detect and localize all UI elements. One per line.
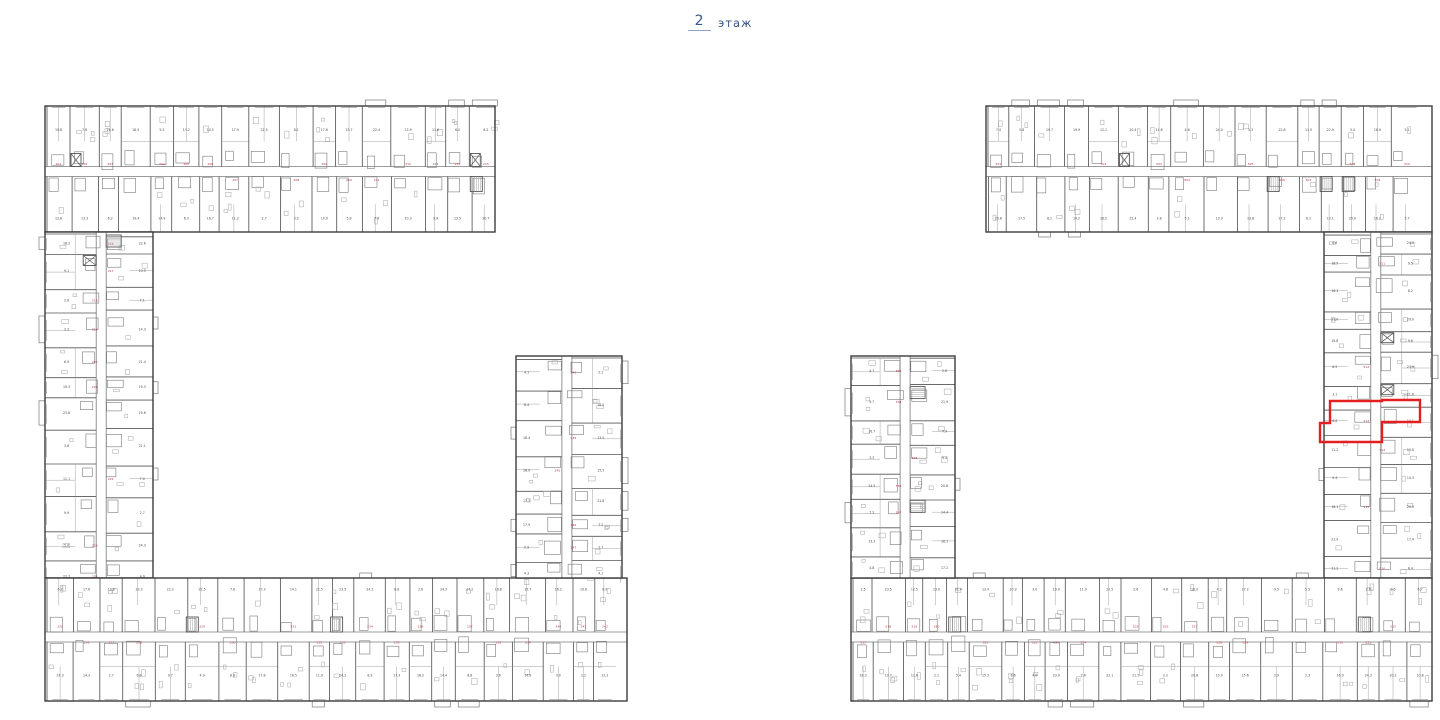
svg-text:229: 229 — [199, 625, 205, 629]
svg-text:17.2: 17.2 — [941, 566, 948, 570]
svg-text:7.8: 7.8 — [230, 587, 235, 591]
building-left: 19.812.82017.813.320216.66.220318.519.45… — [39, 100, 628, 707]
svg-text:18.0: 18.0 — [523, 469, 530, 473]
svg-text:201: 201 — [56, 162, 62, 166]
svg-text:13.3: 13.3 — [868, 539, 875, 543]
svg-text:231: 231 — [291, 625, 297, 629]
svg-text:216: 216 — [108, 241, 114, 245]
wing-left: 18.222.62169.110.52172.67.12183.314.3219… — [39, 232, 158, 590]
svg-text:22.6: 22.6 — [139, 241, 146, 245]
svg-text:20.2: 20.2 — [1389, 673, 1396, 677]
svg-text:21.4: 21.4 — [955, 587, 962, 591]
svg-text:211: 211 — [374, 178, 380, 182]
svg-text:4.9: 4.9 — [200, 673, 205, 677]
svg-text:9.9: 9.9 — [64, 511, 69, 515]
svg-text:13.8: 13.8 — [1247, 216, 1254, 220]
svg-text:523: 523 — [1053, 641, 1059, 645]
svg-text:7.0: 7.0 — [140, 477, 145, 481]
svg-text:207: 207 — [232, 178, 238, 182]
svg-text:24.2: 24.2 — [366, 587, 373, 591]
svg-text:2.6: 2.6 — [1081, 673, 1086, 677]
svg-text:8.9: 8.9 — [602, 587, 607, 591]
svg-text:16.2: 16.2 — [555, 587, 562, 591]
svg-text:3.0: 3.0 — [556, 673, 561, 677]
svg-text:9.6: 9.6 — [1338, 587, 1343, 591]
svg-text:225: 225 — [57, 625, 63, 629]
svg-text:19.4: 19.4 — [132, 216, 139, 220]
svg-text:9.5: 9.5 — [1274, 587, 1279, 591]
svg-text:14.4: 14.4 — [440, 673, 447, 677]
svg-text:17.9: 17.9 — [523, 523, 530, 527]
svg-text:11.6: 11.6 — [911, 673, 918, 677]
svg-text:217: 217 — [108, 269, 114, 273]
svg-text:17.5: 17.5 — [1018, 216, 1025, 220]
svg-text:241: 241 — [581, 625, 587, 629]
svg-text:22.5: 22.5 — [199, 587, 206, 591]
svg-text:19.8: 19.8 — [1331, 339, 1338, 343]
svg-text:530: 530 — [1337, 641, 1343, 645]
svg-text:17.6: 17.6 — [321, 128, 328, 132]
svg-text:23.9: 23.9 — [1053, 673, 1060, 677]
svg-text:23.7: 23.7 — [345, 128, 352, 132]
svg-text:12.8: 12.8 — [55, 216, 62, 220]
svg-text:10.5: 10.5 — [207, 128, 214, 132]
svg-text:518: 518 — [885, 625, 891, 629]
svg-text:203: 203 — [107, 162, 113, 166]
svg-text:4.6: 4.6 — [1185, 128, 1190, 132]
svg-text:15.3: 15.3 — [982, 673, 989, 677]
svg-text:519: 519 — [912, 625, 918, 629]
svg-text:13.2: 13.2 — [183, 128, 190, 132]
svg-text:14.2: 14.2 — [1073, 216, 1080, 220]
svg-text:17.3: 17.3 — [393, 673, 400, 677]
svg-text:5.8: 5.8 — [1019, 128, 1024, 132]
svg-text:21.1: 21.1 — [139, 444, 146, 448]
svg-text:20.8: 20.8 — [1191, 673, 1198, 677]
svg-text:13.1: 13.1 — [1327, 216, 1334, 220]
svg-text:11.1: 11.1 — [63, 477, 70, 481]
svg-text:3.2: 3.2 — [294, 216, 299, 220]
svg-text:10.9: 10.9 — [321, 216, 328, 220]
svg-text:236: 236 — [418, 625, 424, 629]
svg-text:8.8: 8.8 — [1332, 419, 1337, 423]
svg-text:18.9: 18.9 — [1374, 128, 1381, 132]
svg-text:7.1: 7.1 — [140, 298, 145, 302]
svg-text:17.6: 17.6 — [83, 587, 90, 591]
svg-text:17.2: 17.2 — [466, 587, 473, 591]
svg-text:6.7: 6.7 — [1418, 587, 1423, 591]
svg-text:3.0: 3.0 — [1032, 587, 1037, 591]
svg-text:22.5: 22.5 — [261, 128, 268, 132]
svg-text:8.8: 8.8 — [394, 587, 399, 591]
svg-text:534: 534 — [896, 400, 902, 404]
svg-text:210: 210 — [346, 178, 352, 182]
svg-text:240: 240 — [555, 625, 561, 629]
svg-text:23.3: 23.3 — [135, 587, 142, 591]
svg-text:521: 521 — [983, 641, 989, 645]
svg-text:9.9: 9.9 — [433, 216, 438, 220]
svg-text:8.6: 8.6 — [1011, 673, 1016, 677]
svg-text:15.6: 15.6 — [1242, 673, 1249, 677]
svg-text:19.3: 19.3 — [63, 385, 70, 389]
svg-text:12.1: 12.1 — [1100, 128, 1107, 132]
svg-text:8.8: 8.8 — [467, 673, 472, 677]
svg-text:226: 226 — [84, 641, 90, 645]
svg-text:7.2: 7.2 — [869, 511, 874, 515]
floor-plan-canvas: 19.812.82017.813.320216.66.220318.519.45… — [0, 0, 1440, 720]
svg-text:11.6: 11.6 — [432, 128, 439, 132]
svg-text:18.0: 18.0 — [597, 403, 604, 407]
svg-text:13.3: 13.3 — [81, 216, 88, 220]
svg-text:19.8: 19.8 — [55, 128, 62, 132]
svg-text:2.7: 2.7 — [109, 673, 114, 677]
svg-text:9.5: 9.5 — [1408, 262, 1413, 266]
svg-text:516: 516 — [1379, 567, 1385, 571]
svg-text:2.2: 2.2 — [581, 673, 586, 677]
svg-text:6.5: 6.5 — [1332, 365, 1337, 369]
svg-text:24.3: 24.3 — [1365, 673, 1372, 677]
svg-text:14.3: 14.3 — [139, 327, 146, 331]
svg-text:237: 237 — [467, 625, 473, 629]
svg-text:239: 239 — [525, 641, 531, 645]
svg-text:21.5: 21.5 — [316, 587, 323, 591]
svg-text:9.6: 9.6 — [1390, 587, 1395, 591]
svg-text:230: 230 — [230, 641, 236, 645]
svg-text:6.6: 6.6 — [1332, 241, 1337, 245]
svg-text:14.4: 14.4 — [941, 511, 948, 515]
svg-text:17.3: 17.3 — [523, 499, 530, 503]
svg-text:24.5: 24.5 — [868, 484, 875, 488]
svg-text:6.1: 6.1 — [1306, 216, 1311, 220]
svg-text:507: 507 — [1306, 178, 1312, 182]
svg-text:537: 537 — [896, 511, 902, 515]
svg-text:244: 244 — [571, 436, 577, 440]
svg-text:526: 526 — [1163, 625, 1169, 629]
svg-text:525: 525 — [1133, 625, 1139, 629]
svg-text:24.2: 24.2 — [339, 673, 346, 677]
svg-text:502: 502 — [1101, 162, 1107, 166]
svg-text:20.4: 20.4 — [1129, 128, 1136, 132]
svg-text:16.1: 16.1 — [941, 539, 948, 543]
svg-text:21.2: 21.2 — [1331, 567, 1338, 571]
svg-text:238: 238 — [495, 641, 501, 645]
svg-text:3.6: 3.6 — [496, 673, 501, 677]
svg-text:512: 512 — [1363, 365, 1369, 369]
svg-text:18.4: 18.4 — [523, 436, 530, 440]
svg-text:20.0: 20.0 — [1407, 317, 1414, 321]
svg-text:17.9: 17.9 — [232, 128, 239, 132]
svg-text:4.0: 4.0 — [1032, 673, 1037, 677]
svg-text:5.1: 5.1 — [1404, 128, 1409, 132]
svg-text:19.7: 19.7 — [885, 673, 892, 677]
svg-text:24.0: 24.0 — [1407, 241, 1414, 245]
svg-text:4.1: 4.1 — [598, 571, 603, 575]
svg-text:14.9: 14.9 — [524, 673, 531, 677]
svg-text:5.5: 5.5 — [159, 128, 164, 132]
svg-text:15.7: 15.7 — [524, 587, 531, 591]
svg-text:228: 228 — [136, 641, 142, 645]
svg-text:533: 533 — [896, 369, 902, 373]
svg-text:10.3: 10.3 — [405, 216, 412, 220]
svg-text:9.7: 9.7 — [168, 673, 173, 677]
svg-text:23.8: 23.8 — [63, 411, 70, 415]
building-right: 7.420.85015.817.519.78.119.914.212.118.2… — [845, 100, 1438, 707]
svg-text:13.5: 13.5 — [597, 436, 604, 440]
svg-text:22.4: 22.4 — [373, 128, 380, 132]
svg-text:6.3: 6.3 — [184, 216, 189, 220]
svg-text:24.3: 24.3 — [139, 543, 146, 547]
svg-text:19.9: 19.9 — [1073, 128, 1080, 132]
wing-top: 7.420.85015.817.519.78.119.914.212.118.2… — [986, 100, 1432, 237]
svg-text:504: 504 — [1184, 178, 1190, 182]
svg-text:18.3: 18.3 — [860, 673, 867, 677]
svg-text:7.4: 7.4 — [996, 128, 1001, 132]
svg-text:22.1: 22.1 — [1106, 673, 1113, 677]
svg-text:10.8: 10.8 — [108, 587, 115, 591]
svg-text:11.0: 11.0 — [1305, 128, 1312, 132]
svg-text:5.0: 5.0 — [64, 543, 69, 547]
svg-text:15.5: 15.5 — [597, 469, 604, 473]
svg-text:18.5: 18.5 — [1331, 262, 1338, 266]
svg-text:21.6: 21.6 — [1407, 392, 1414, 396]
svg-text:520: 520 — [934, 625, 940, 629]
svg-text:4.8: 4.8 — [1163, 587, 1168, 591]
svg-text:20.7: 20.7 — [482, 216, 489, 220]
svg-text:5.5: 5.5 — [1305, 587, 1310, 591]
svg-text:7.2: 7.2 — [598, 523, 603, 527]
svg-text:2.5: 2.5 — [861, 587, 866, 591]
svg-text:535: 535 — [912, 456, 918, 460]
svg-text:212: 212 — [405, 162, 411, 166]
svg-text:245: 245 — [555, 469, 561, 473]
svg-text:22.5: 22.5 — [1106, 587, 1113, 591]
svg-text:10.0: 10.0 — [1216, 673, 1223, 677]
svg-text:206: 206 — [207, 162, 213, 166]
svg-text:24.0: 24.0 — [1216, 128, 1223, 132]
svg-text:10.5: 10.5 — [139, 269, 146, 273]
svg-text:19.7: 19.7 — [1046, 128, 1053, 132]
svg-text:232: 232 — [317, 641, 323, 645]
svg-text:2.6: 2.6 — [942, 369, 947, 373]
svg-text:529: 529 — [1242, 641, 1248, 645]
svg-text:3.8: 3.8 — [64, 444, 69, 448]
svg-text:246: 246 — [571, 523, 577, 527]
svg-text:247: 247 — [571, 545, 577, 549]
svg-text:209: 209 — [321, 162, 327, 166]
svg-text:6.8: 6.8 — [136, 673, 141, 677]
svg-text:8.9: 8.9 — [230, 673, 235, 677]
svg-text:2.7: 2.7 — [262, 216, 267, 220]
svg-text:14.3: 14.3 — [1407, 476, 1414, 480]
svg-text:7.4: 7.4 — [374, 216, 379, 220]
svg-text:531: 531 — [1365, 641, 1371, 645]
svg-text:16.2: 16.2 — [1374, 216, 1381, 220]
svg-text:13.4: 13.4 — [982, 587, 989, 591]
svg-text:6.0: 6.0 — [455, 128, 460, 132]
svg-text:17.8: 17.8 — [258, 673, 265, 677]
svg-text:6.2: 6.2 — [108, 216, 113, 220]
svg-text:14.1: 14.1 — [290, 587, 297, 591]
svg-text:11.9: 11.9 — [1080, 587, 1087, 591]
svg-text:3.8: 3.8 — [1157, 216, 1162, 220]
svg-text:202: 202 — [82, 162, 88, 166]
svg-text:8.9: 8.9 — [367, 673, 372, 677]
svg-text:2.2: 2.2 — [1163, 673, 1168, 677]
svg-text:11.9: 11.9 — [316, 673, 323, 677]
wing-bottom: 18.32.551719.723.551811.612.55192.113.05… — [851, 573, 1433, 707]
wing-bottom: 24.36.222514.317.62262.710.82276.823.322… — [45, 573, 627, 707]
svg-text:9.7: 9.7 — [869, 400, 874, 404]
svg-text:2.7: 2.7 — [140, 511, 145, 515]
svg-text:17.2: 17.2 — [1278, 216, 1285, 220]
svg-text:24.3: 24.3 — [440, 587, 447, 591]
svg-text:213: 213 — [433, 162, 439, 166]
svg-text:5.4: 5.4 — [956, 673, 961, 677]
svg-text:9.4: 9.4 — [942, 456, 947, 460]
svg-text:7.9: 7.9 — [942, 430, 947, 434]
svg-text:13.9: 13.9 — [405, 128, 412, 132]
svg-text:214: 214 — [455, 162, 461, 166]
svg-text:3.4: 3.4 — [1350, 128, 1355, 132]
svg-text:19.3: 19.3 — [139, 385, 146, 389]
svg-text:20.9: 20.9 — [1010, 587, 1017, 591]
svg-text:528: 528 — [1216, 641, 1222, 645]
svg-text:222: 222 — [108, 477, 114, 481]
wing-top: 19.812.82017.813.320216.66.220318.519.45… — [45, 100, 499, 232]
svg-text:235: 235 — [394, 641, 400, 645]
svg-text:501: 501 — [996, 162, 1002, 166]
svg-text:4.3: 4.3 — [524, 571, 529, 575]
svg-text:18.2: 18.2 — [63, 241, 70, 245]
svg-text:514: 514 — [1379, 448, 1385, 452]
svg-text:16.7: 16.7 — [207, 216, 214, 220]
svg-text:18.0: 18.0 — [1191, 587, 1198, 591]
svg-text:9.1: 9.1 — [64, 269, 69, 273]
svg-text:4.8: 4.8 — [869, 566, 874, 570]
svg-text:18.5: 18.5 — [132, 128, 139, 132]
svg-text:11.6: 11.6 — [1156, 128, 1163, 132]
svg-text:503: 503 — [1156, 162, 1162, 166]
svg-text:205: 205 — [183, 162, 189, 166]
svg-text:20.8: 20.8 — [941, 484, 948, 488]
svg-text:22.2: 22.2 — [601, 673, 608, 677]
svg-text:16.6: 16.6 — [107, 128, 114, 132]
svg-text:2.6: 2.6 — [418, 587, 423, 591]
svg-text:16.7: 16.7 — [868, 430, 875, 434]
svg-text:22.8: 22.8 — [1278, 128, 1285, 132]
svg-text:234: 234 — [367, 625, 373, 629]
svg-text:19.6: 19.6 — [139, 411, 146, 415]
svg-text:506: 506 — [1279, 178, 1285, 182]
svg-text:2.6: 2.6 — [1366, 587, 1371, 591]
svg-text:8.1: 8.1 — [1047, 216, 1052, 220]
svg-text:12.5: 12.5 — [911, 587, 918, 591]
svg-text:6.2: 6.2 — [483, 128, 488, 132]
svg-text:20.9: 20.9 — [1407, 505, 1414, 509]
svg-text:19.0: 19.0 — [1053, 587, 1060, 591]
svg-text:10.8: 10.8 — [1417, 673, 1424, 677]
svg-text:6.2: 6.2 — [58, 587, 63, 591]
svg-text:20.0: 20.0 — [1349, 216, 1356, 220]
svg-text:11.0: 11.0 — [1331, 317, 1338, 321]
svg-text:18.1: 18.1 — [1331, 505, 1338, 509]
svg-text:17.3: 17.3 — [258, 587, 265, 591]
svg-text:14.9: 14.9 — [158, 216, 165, 220]
svg-text:215: 215 — [483, 162, 489, 166]
svg-text:524: 524 — [1080, 641, 1086, 645]
svg-text:536: 536 — [896, 484, 902, 488]
svg-text:204: 204 — [159, 162, 165, 166]
svg-text:8.1: 8.1 — [294, 128, 299, 132]
svg-text:6.9: 6.9 — [64, 360, 69, 364]
svg-text:2.7: 2.7 — [598, 545, 603, 549]
svg-text:2.3: 2.3 — [1305, 673, 1310, 677]
svg-text:17.2: 17.2 — [1242, 587, 1249, 591]
svg-text:223: 223 — [92, 543, 98, 547]
svg-text:19.8: 19.8 — [580, 587, 587, 591]
svg-text:233: 233 — [340, 641, 346, 645]
svg-text:22.2: 22.2 — [167, 587, 174, 591]
svg-text:242: 242 — [602, 625, 608, 629]
floor-plan-page: 2этаж 19.812.82017.813.320216.66.220318.… — [0, 0, 1440, 720]
svg-text:4.2: 4.2 — [1217, 587, 1222, 591]
svg-text:13.3: 13.3 — [1216, 216, 1223, 220]
svg-text:13.5: 13.5 — [454, 216, 461, 220]
svg-text:11.2: 11.2 — [232, 216, 239, 220]
wing-right-stub: 2.14.124318.06.413.518.424415.518.024521… — [511, 356, 628, 585]
svg-text:3.3: 3.3 — [64, 327, 69, 331]
svg-text:7.8: 7.8 — [82, 128, 87, 132]
svg-text:16.9: 16.9 — [1337, 673, 1344, 677]
svg-text:219: 219 — [92, 327, 98, 331]
svg-text:4.7: 4.7 — [869, 369, 874, 373]
svg-text:532: 532 — [1390, 625, 1396, 629]
svg-text:17.4: 17.4 — [1407, 537, 1414, 541]
svg-text:15.6: 15.6 — [1407, 448, 1414, 452]
svg-text:5.4: 5.4 — [1332, 476, 1337, 480]
svg-text:8.2: 8.2 — [1408, 289, 1413, 293]
svg-text:21.5: 21.5 — [1132, 673, 1139, 677]
svg-text:16.1: 16.1 — [1331, 289, 1338, 293]
svg-text:4.1: 4.1 — [524, 370, 529, 374]
svg-text:21.4: 21.4 — [139, 360, 146, 364]
svg-text:5.3: 5.3 — [1248, 128, 1253, 132]
svg-text:517: 517 — [860, 641, 866, 645]
svg-text:23.9: 23.9 — [1407, 365, 1414, 369]
svg-text:221: 221 — [92, 385, 98, 389]
svg-text:243: 243 — [571, 370, 577, 374]
svg-text:14.3: 14.3 — [83, 673, 90, 677]
svg-text:24.3: 24.3 — [57, 673, 64, 677]
svg-text:18.2: 18.2 — [417, 673, 424, 677]
svg-text:18.2: 18.2 — [1100, 216, 1107, 220]
svg-text:505: 505 — [1248, 162, 1254, 166]
svg-text:21.9: 21.9 — [941, 400, 948, 404]
svg-text:9.6: 9.6 — [1408, 339, 1413, 343]
svg-text:218: 218 — [92, 298, 98, 302]
wing-left-stub: 4.72.65339.721.953416.77.93.39.453524.52… — [845, 356, 960, 578]
svg-text:208: 208 — [293, 178, 299, 182]
svg-text:2.1: 2.1 — [598, 370, 603, 374]
svg-text:5.8: 5.8 — [346, 216, 351, 220]
svg-text:20.8: 20.8 — [995, 216, 1002, 220]
svg-text:510: 510 — [1404, 162, 1410, 166]
svg-text:2.6: 2.6 — [64, 298, 69, 302]
svg-text:5.1: 5.1 — [1185, 216, 1190, 220]
svg-text:6.4: 6.4 — [524, 403, 529, 407]
svg-text:508: 508 — [1350, 162, 1356, 166]
svg-text:2.6: 2.6 — [1133, 587, 1138, 591]
